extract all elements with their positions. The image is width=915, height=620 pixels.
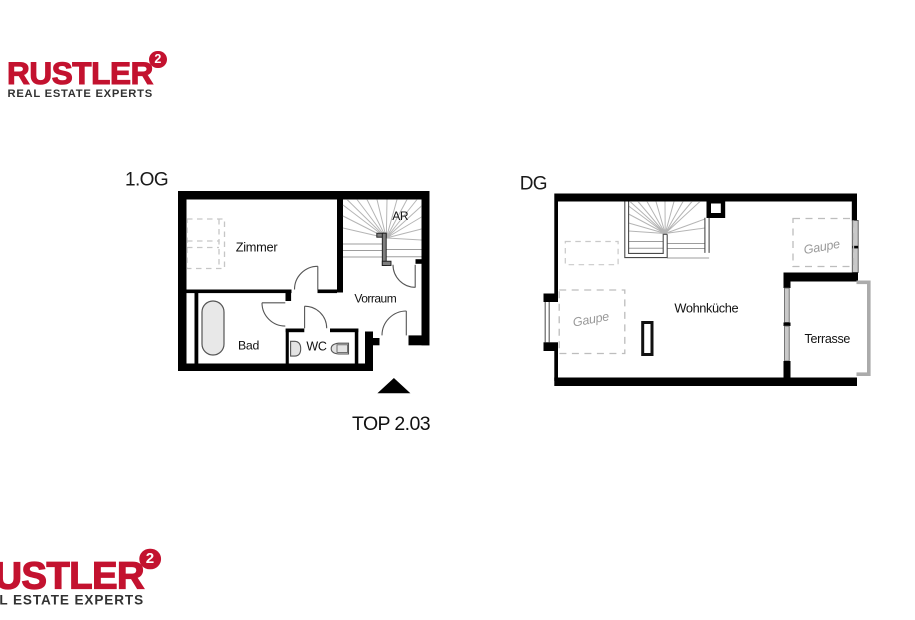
svg-text:Gaupe: Gaupe [572,309,611,329]
svg-text:Bad: Bad [238,338,259,352]
svg-text:Wohnküche: Wohnküche [674,301,738,316]
svg-text:DG: DG [520,174,547,195]
svg-text:Vorraum: Vorraum [354,292,396,306]
svg-text:WC: WC [306,339,326,353]
svg-text:AR: AR [392,209,409,223]
svg-text:Gaupe: Gaupe [803,237,842,257]
svg-text:TOP 2.03: TOP 2.03 [352,413,430,435]
svg-text:Zimmer: Zimmer [236,240,279,255]
svg-text:1.OG: 1.OG [125,170,168,191]
svg-text:Terrasse: Terrasse [805,332,851,346]
